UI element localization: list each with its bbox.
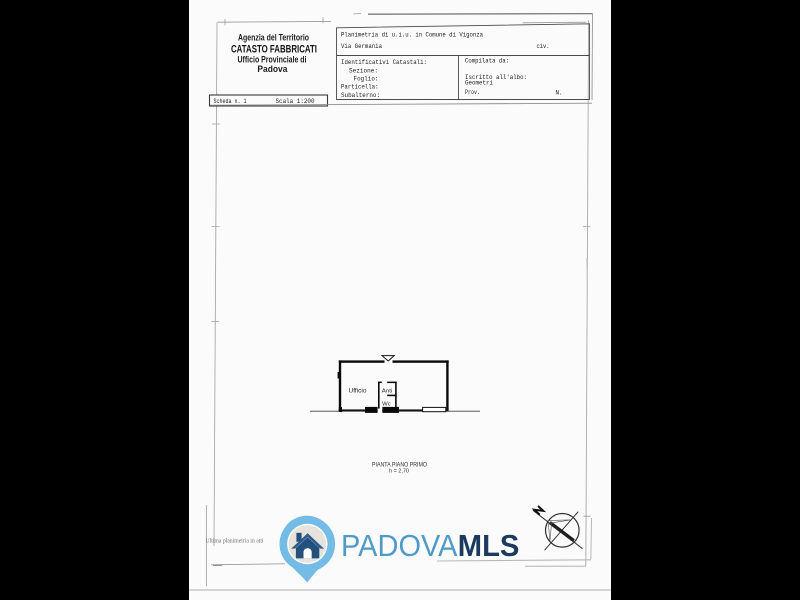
svg-text:Foglio:: Foglio:	[354, 75, 379, 82]
svg-text:Scala 1:200: Scala 1:200	[276, 98, 315, 105]
svg-text:Anti: Anti	[382, 388, 393, 394]
svg-text:h = 2,70: h = 2,70	[389, 468, 409, 474]
svg-text:Subalterno:: Subalterno:	[341, 92, 380, 99]
svg-text:Compilata da:: Compilata da:	[465, 58, 509, 65]
svg-text:Wc: Wc	[382, 402, 391, 408]
svg-text:civ.: civ.	[537, 43, 550, 50]
svg-text:Identificativi Catastali:: Identificativi Catastali:	[341, 59, 427, 66]
svg-text:Padova: Padova	[257, 64, 288, 75]
svg-text:N.: N.	[556, 90, 563, 97]
svg-text:Planimetria di u.i.u. in Comun: Planimetria di u.i.u. in Comune di Vigon…	[341, 32, 483, 39]
svg-text:MLS: MLS	[458, 528, 520, 563]
svg-text:Agenzia del Territorio: Agenzia del Territorio	[238, 32, 309, 43]
svg-text:Geometri: Geometri	[465, 80, 493, 87]
svg-text:Prov.: Prov.	[465, 89, 480, 96]
svg-text:Ufficio: Ufficio	[349, 387, 368, 394]
svg-text:PIANTA PIANO PRIMO: PIANTA PIANO PRIMO	[372, 461, 427, 468]
svg-text:Particella:: Particella:	[341, 84, 379, 91]
svg-text:Sezione:: Sezione:	[349, 68, 378, 75]
svg-text:Scheda n. 1: Scheda n. 1	[214, 98, 247, 105]
svg-text:Ultima planimetria in atti: Ultima planimetria in atti	[206, 538, 264, 545]
svg-text:PADOVA: PADOVA	[341, 528, 458, 563]
svg-text:Via Germania: Via Germania	[341, 43, 382, 50]
